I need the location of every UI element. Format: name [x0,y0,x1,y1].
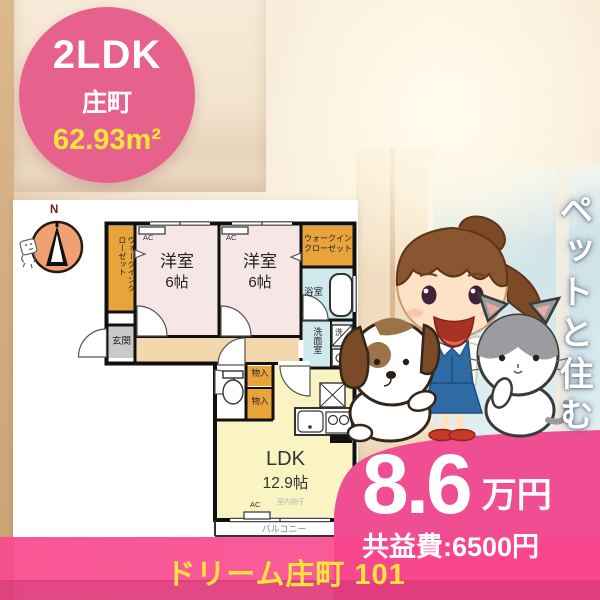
dog-character [340,318,439,441]
rent-amount: 8.6 [362,448,470,522]
pets-tagline: ペットと住む [549,192,598,444]
rent-unit: 万円 [482,467,552,518]
price-block: 8.6 万円 共益費:6500円 [362,448,600,564]
floor-area: 62.93m² [53,124,161,157]
district-name: 庄町 [82,83,132,119]
listing-badge: 2LDK 庄町 62.93m² [19,7,195,183]
rental-listing-ad: N ウォークインクローゼット 洋室6帖 洋室6帖 AC AC AC ウォークイン… [0,0,600,600]
mascot-illustration [330,205,575,445]
common-fee: 共益費:6500円 [362,525,600,564]
layout-type: 2LDK [53,33,161,78]
